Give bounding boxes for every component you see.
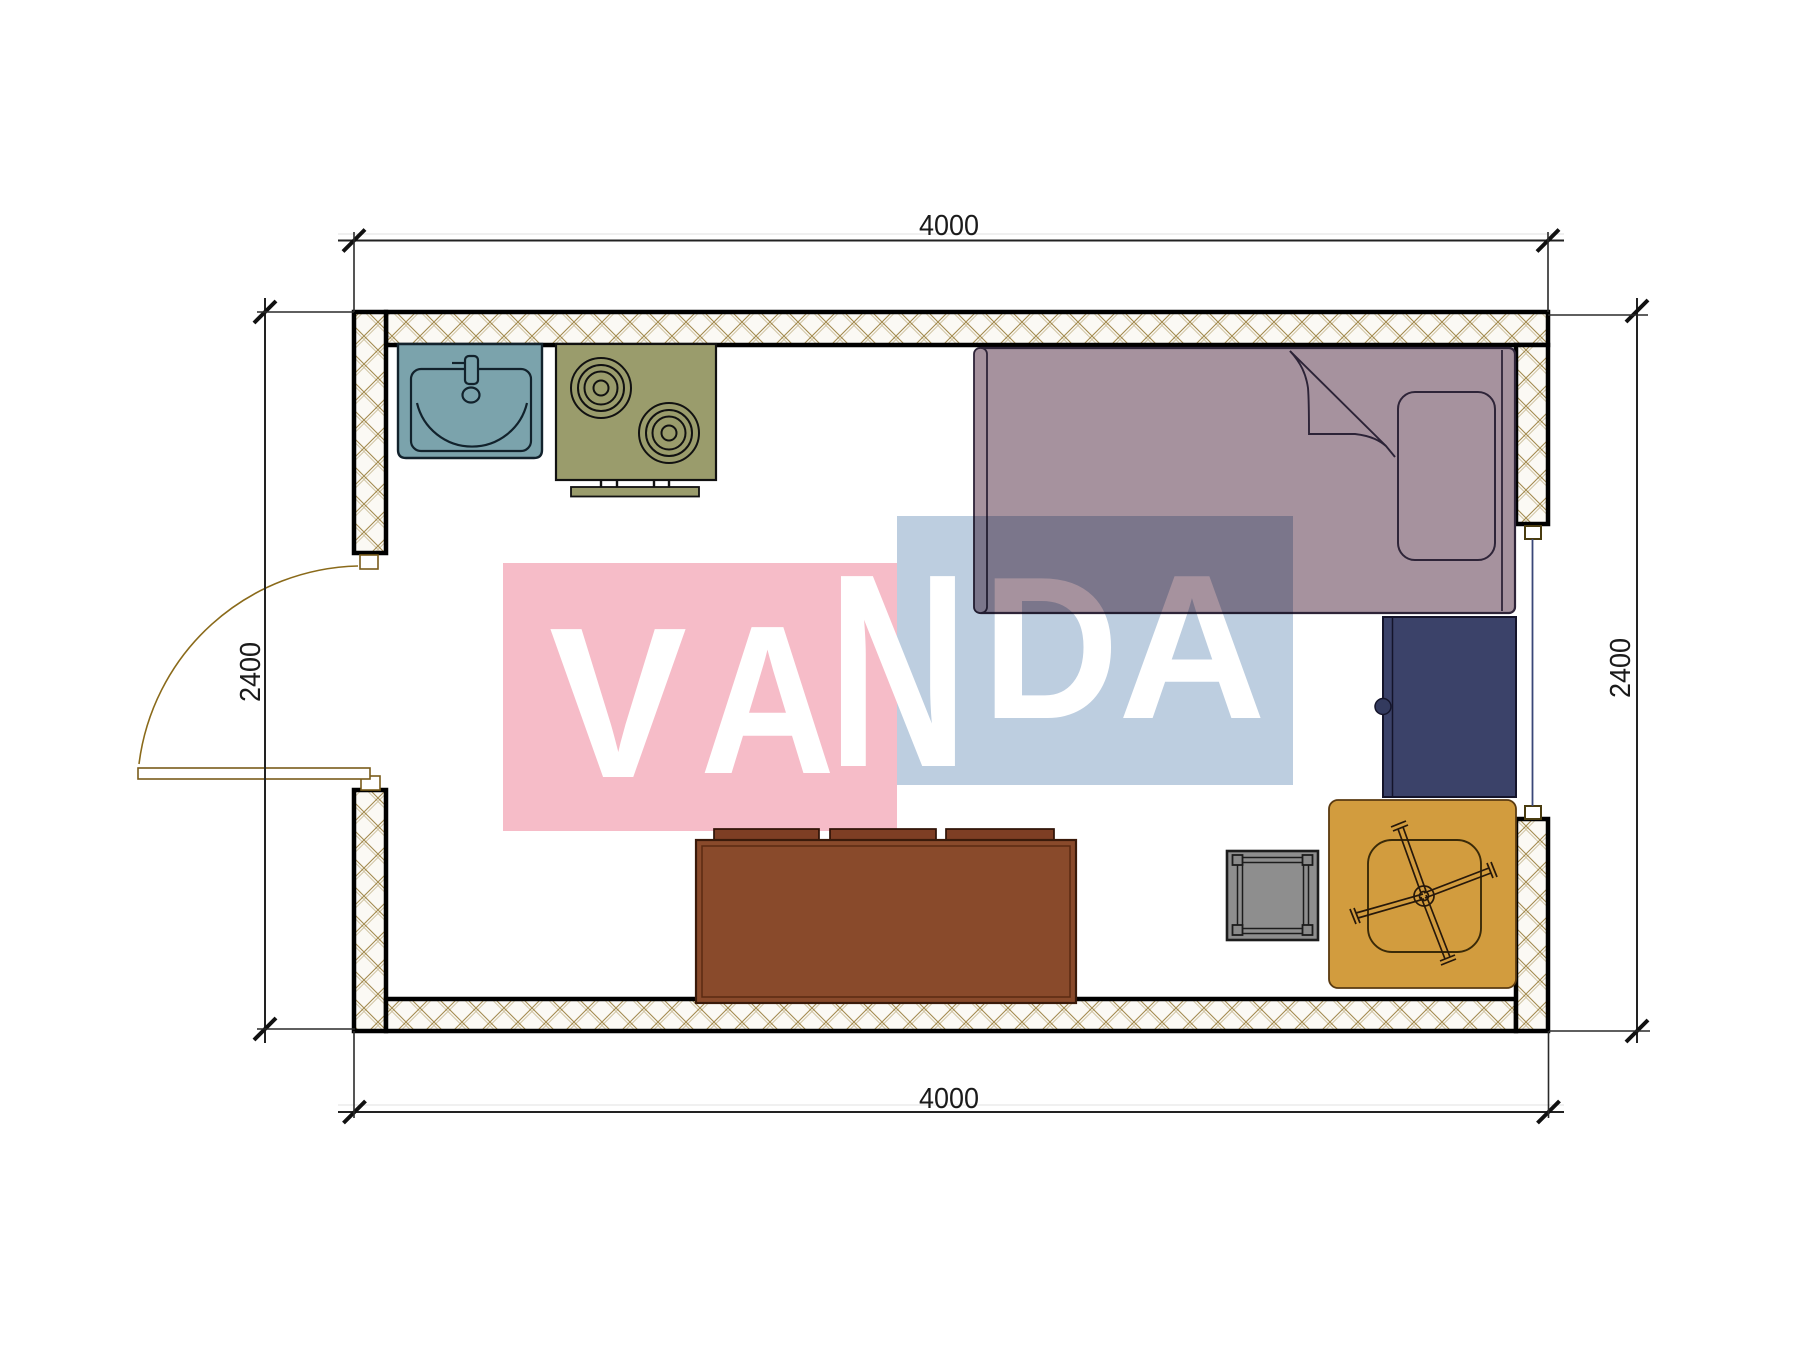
svg-text:4000: 4000 bbox=[919, 1083, 979, 1115]
svg-text:4000: 4000 bbox=[919, 210, 979, 242]
svg-text:2400: 2400 bbox=[1605, 638, 1637, 698]
svg-text:2400: 2400 bbox=[235, 642, 267, 702]
